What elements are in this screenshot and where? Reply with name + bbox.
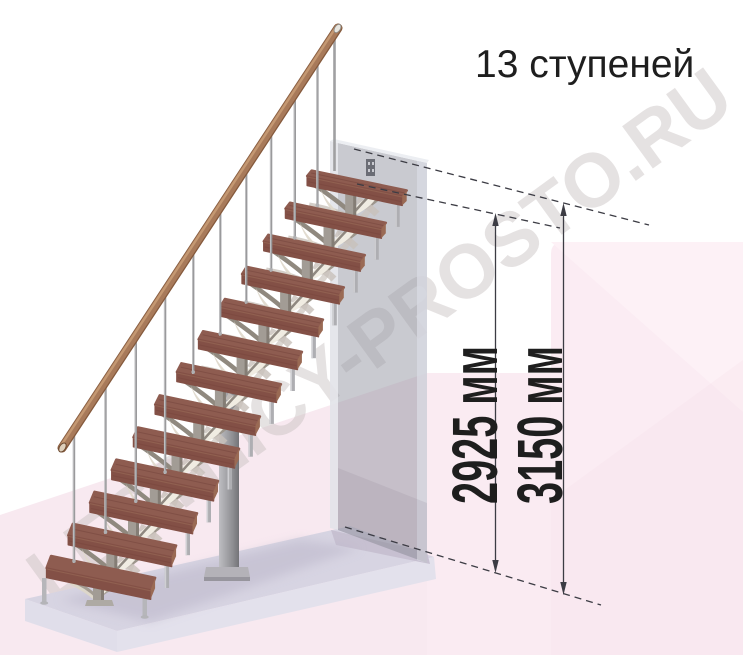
svg-text:3150 мм: 3150 мм xyxy=(504,346,576,504)
svg-text:2925 мм: 2925 мм xyxy=(439,346,511,504)
svg-text:13 ступеней: 13 ступеней xyxy=(475,43,694,86)
